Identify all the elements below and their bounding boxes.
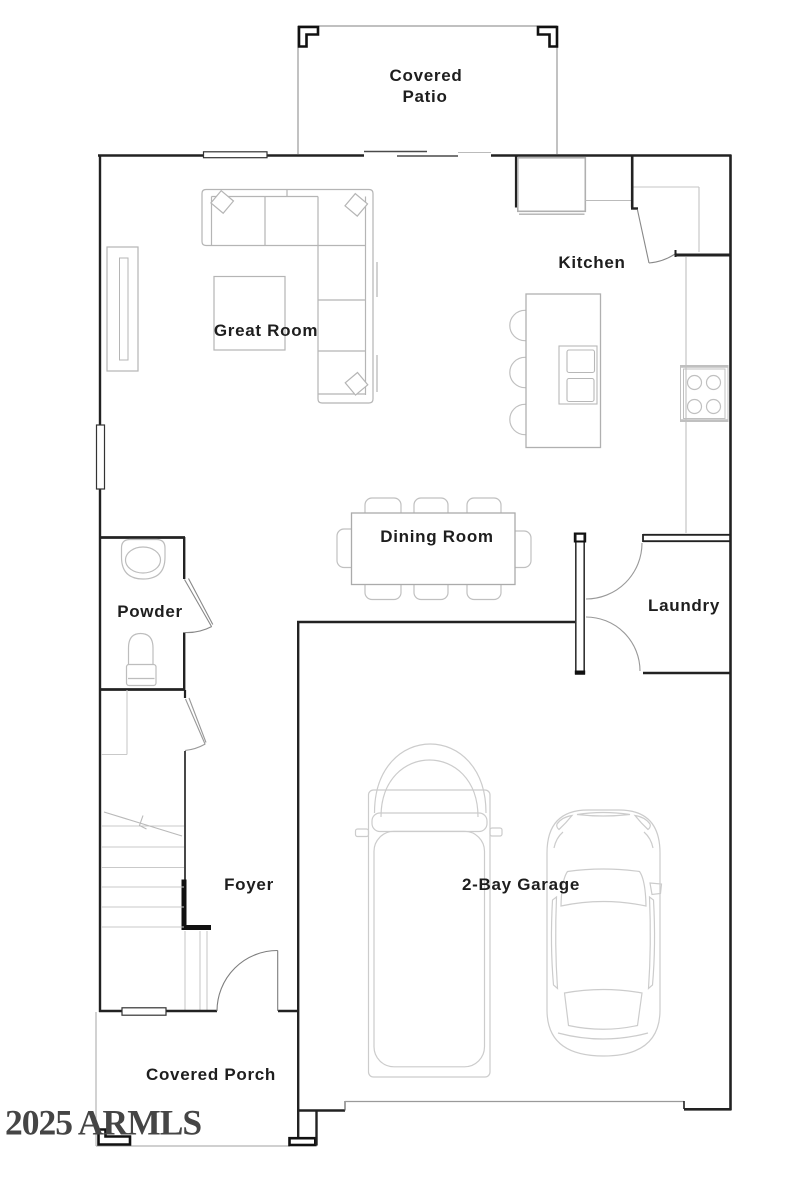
svg-text:Powder: Powder: [117, 602, 183, 621]
svg-text:Dining Room: Dining Room: [380, 527, 493, 546]
svg-text:Patio: Patio: [402, 87, 447, 106]
svg-text:Covered Porch: Covered Porch: [146, 1065, 276, 1084]
svg-text:Kitchen: Kitchen: [558, 253, 625, 272]
svg-text:2-Bay Garage: 2-Bay Garage: [462, 875, 580, 894]
svg-text:Foyer: Foyer: [224, 875, 274, 894]
svg-text:Covered: Covered: [390, 66, 463, 85]
svg-text:2025 ARMLS: 2025 ARMLS: [5, 1103, 201, 1143]
svg-text:Great Room: Great Room: [214, 321, 318, 340]
svg-text:Laundry: Laundry: [648, 596, 720, 615]
